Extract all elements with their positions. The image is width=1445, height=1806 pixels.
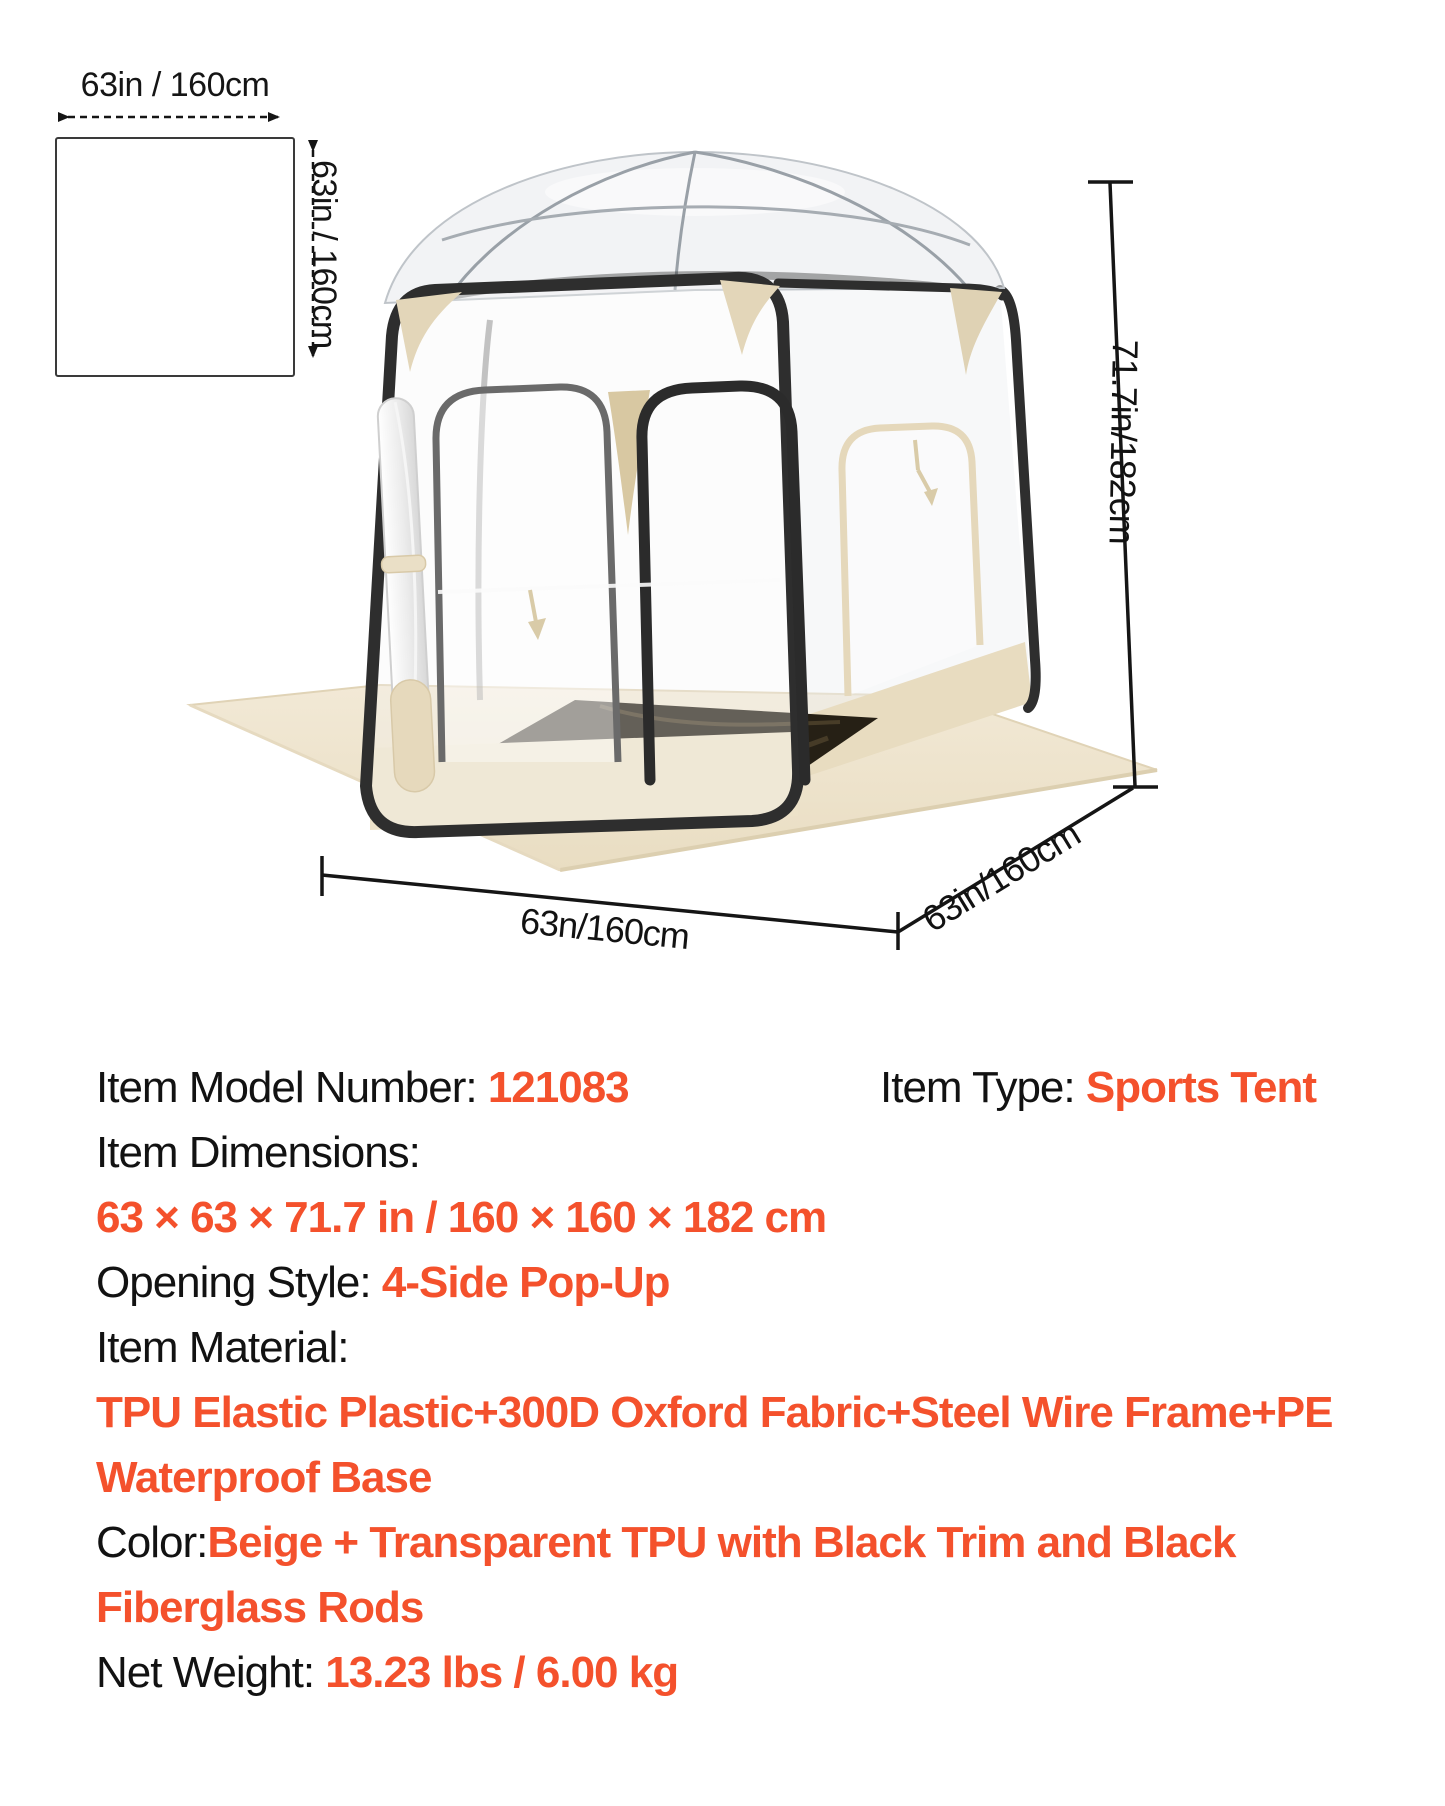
spec-material-value-line1: TPU Elastic Plastic+300D Oxford Fabric+S…	[96, 1389, 1333, 1437]
spec-dimensions-label: Item Dimensions:	[96, 1129, 420, 1177]
spec-weight-value: 13.23 lbs / 6.00 kg	[325, 1648, 678, 1697]
spec-color-value-line1: Beige + Transparent TPU with Black Trim …	[207, 1518, 1235, 1567]
spec-opening-value: 4-Side Pop-Up	[382, 1258, 670, 1307]
product-spec-infographic: { "colors": { "accent": "#F4512C", "text…	[0, 0, 1445, 1806]
spec-type-value: Sports Tent	[1086, 1063, 1316, 1112]
spec-model-row: Item Model Number: 121083 Item Type: Spo…	[96, 1064, 629, 1112]
spec-weight-row: Net Weight: 13.23 lbs / 6.00 kg	[96, 1649, 678, 1697]
spec-color-value-line2: Fiberglass Rods	[96, 1584, 423, 1632]
spec-dimensions-value: 63 × 63 × 71.7 in / 160 × 160 × 182 cm	[96, 1194, 826, 1242]
spec-model-label: Item Model Number:	[96, 1063, 488, 1112]
spec-type-label: Item Type:	[880, 1063, 1086, 1112]
height-dimension-label: 71.7in/182cm	[1100, 339, 1146, 544]
spec-type-row: Item Type: Sports Tent	[880, 1064, 1316, 1112]
spec-weight-label: Net Weight:	[96, 1648, 325, 1697]
spec-opening-label: Opening Style:	[96, 1258, 382, 1307]
spec-model-value: 121083	[488, 1063, 629, 1112]
spec-color-row: Color:Beige + Transparent TPU with Black…	[96, 1519, 1236, 1567]
spec-opening-row: Opening Style: 4-Side Pop-Up	[96, 1259, 670, 1307]
spec-color-label: Color:	[96, 1518, 207, 1567]
spec-material-value-line2: Waterproof Base	[96, 1454, 431, 1502]
spec-material-label: Item Material:	[96, 1324, 349, 1372]
